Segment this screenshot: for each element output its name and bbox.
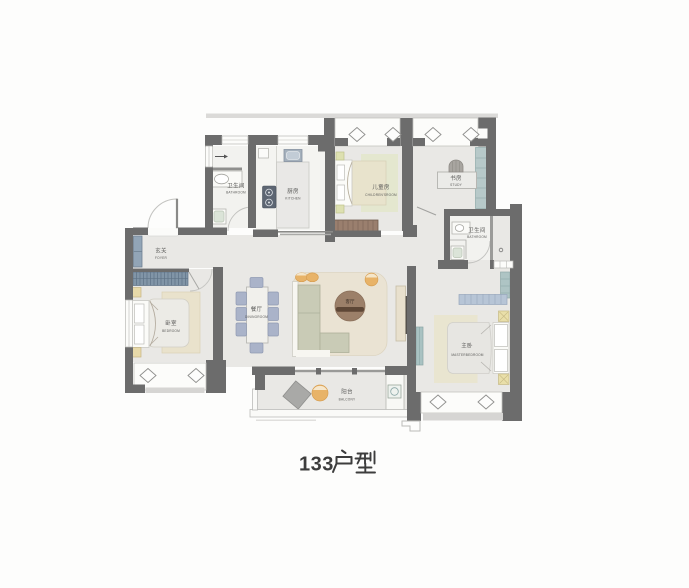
svg-text:BATHROOM: BATHROOM [226, 191, 246, 195]
svg-text:KITCHEN: KITCHEN [285, 197, 301, 201]
svg-text:STUDY: STUDY [450, 183, 462, 187]
svg-text:BATHROOM: BATHROOM [467, 235, 487, 239]
svg-text:BEDROOM: BEDROOM [162, 329, 180, 333]
svg-text:厨房: 厨房 [287, 187, 299, 195]
svg-text:MASTERBEDROOM: MASTERBEDROOM [451, 353, 483, 357]
svg-text:DININGROOM: DININGROOM [245, 315, 268, 319]
svg-text:阳台: 阳台 [341, 388, 353, 396]
svg-text:FOYER: FOYER [155, 256, 167, 260]
svg-text:BALCONY: BALCONY [339, 398, 356, 402]
svg-text:卫生间: 卫生间 [468, 226, 485, 234]
svg-text:儿童房: 儿童房 [372, 183, 390, 191]
svg-text:卫生间: 卫生间 [227, 182, 244, 190]
svg-text:玄关: 玄关 [155, 247, 167, 255]
svg-text:主卧: 主卧 [461, 342, 473, 350]
svg-text:书房: 书房 [450, 174, 462, 182]
svg-text:餐厅: 餐厅 [251, 305, 263, 313]
svg-text:卧室: 卧室 [165, 319, 177, 327]
svg-text:CHILDREN'SROOM: CHILDREN'SROOM [365, 193, 397, 197]
svg-text:133: 133 [299, 454, 334, 476]
svg-text:客厅: 客厅 [346, 298, 355, 305]
